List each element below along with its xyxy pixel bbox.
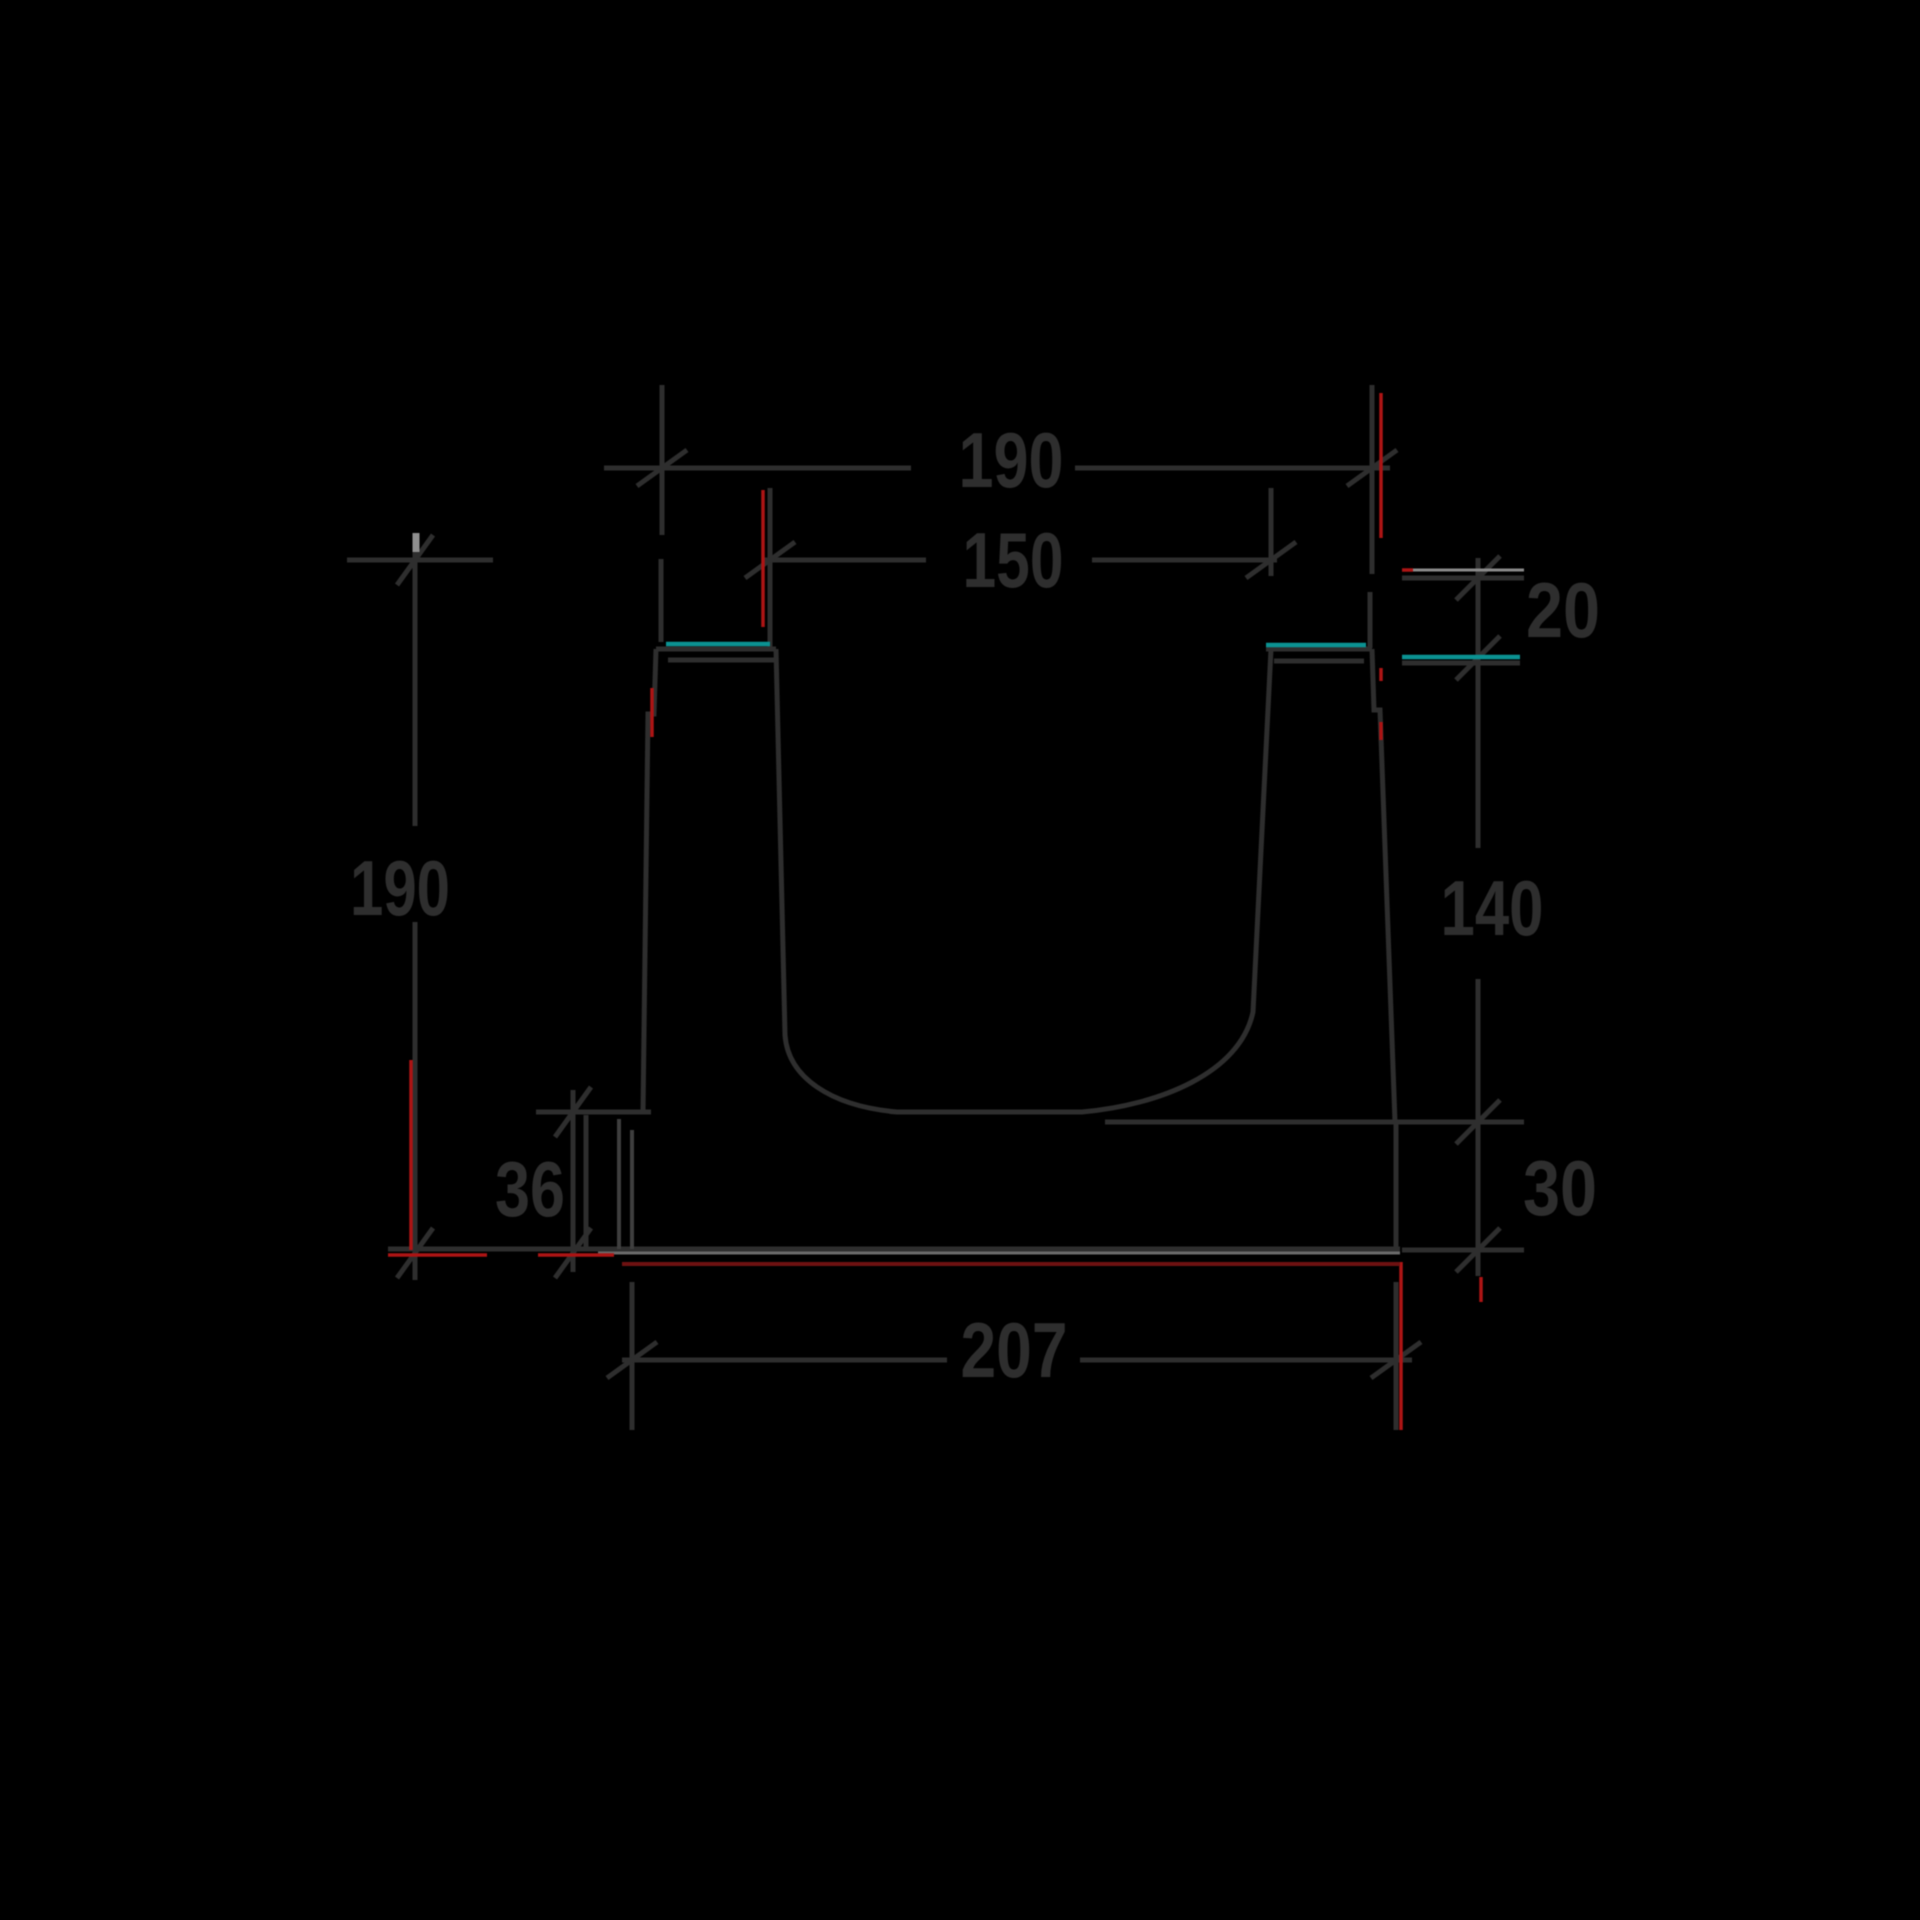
svg-text:150: 150 — [963, 516, 1064, 604]
svg-text:36: 36 — [495, 1145, 565, 1233]
svg-text:190: 190 — [959, 416, 1064, 504]
svg-text:30: 30 — [1523, 1144, 1597, 1232]
svg-text:140: 140 — [1441, 864, 1544, 952]
svg-text:190: 190 — [350, 844, 450, 932]
svg-text:20: 20 — [1526, 566, 1600, 654]
svg-text:207: 207 — [961, 1306, 1068, 1394]
